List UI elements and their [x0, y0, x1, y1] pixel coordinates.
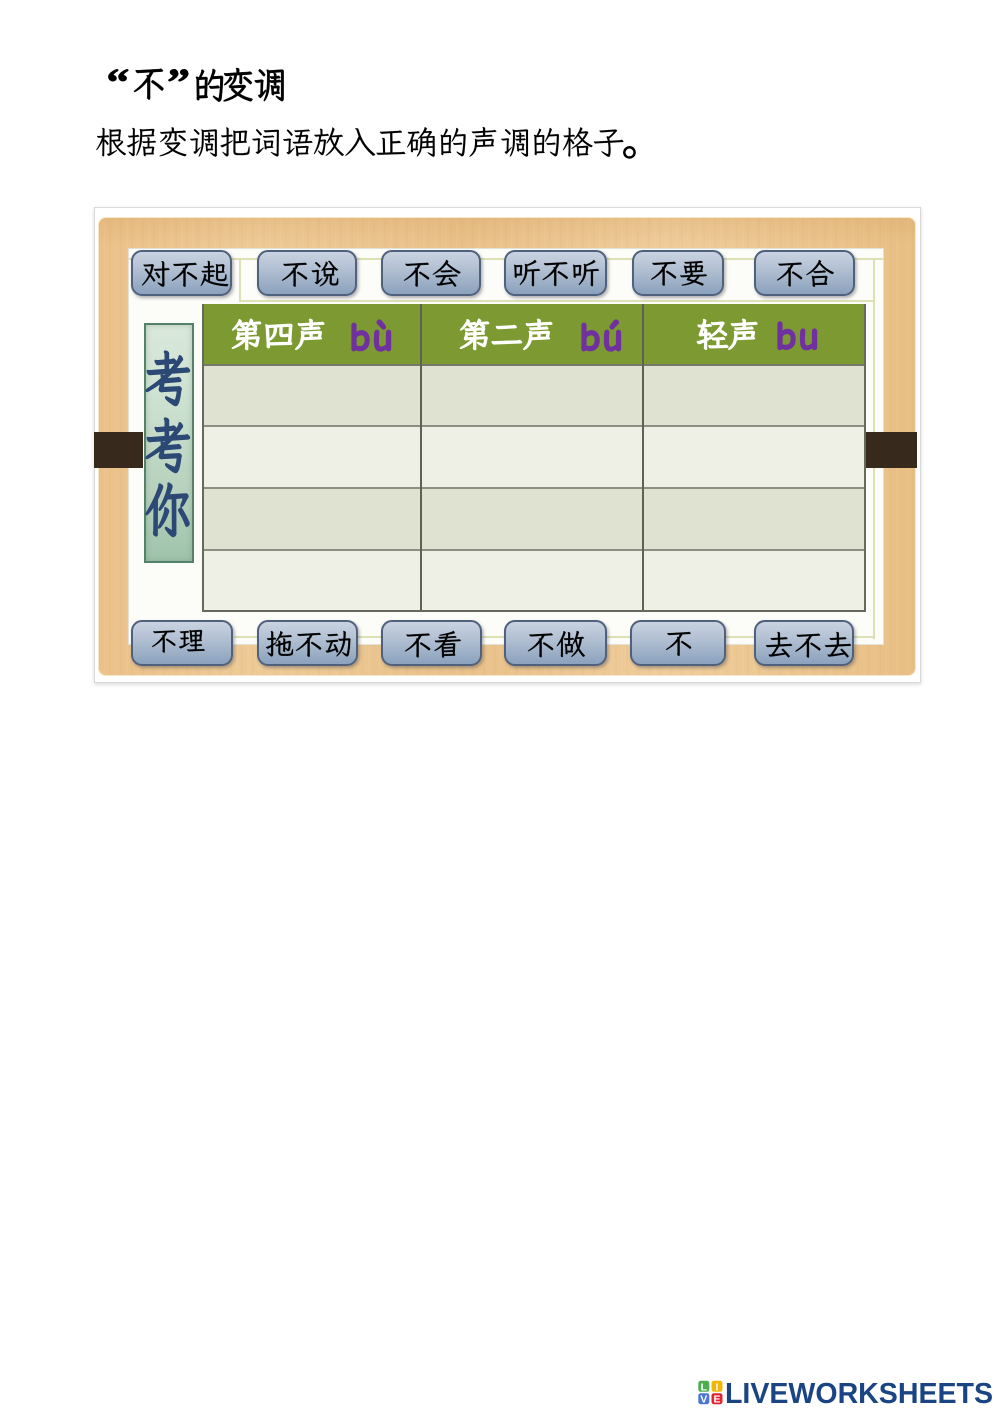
svg-text:L: L — [701, 1381, 708, 1393]
svg-text:V: V — [700, 1394, 707, 1406]
svg-text:E: E — [713, 1394, 720, 1406]
svg-text:I: I — [716, 1381, 719, 1393]
svg-text:LIVEWORKSHEETS: LIVEWORKSHEETS — [725, 1380, 993, 1406]
